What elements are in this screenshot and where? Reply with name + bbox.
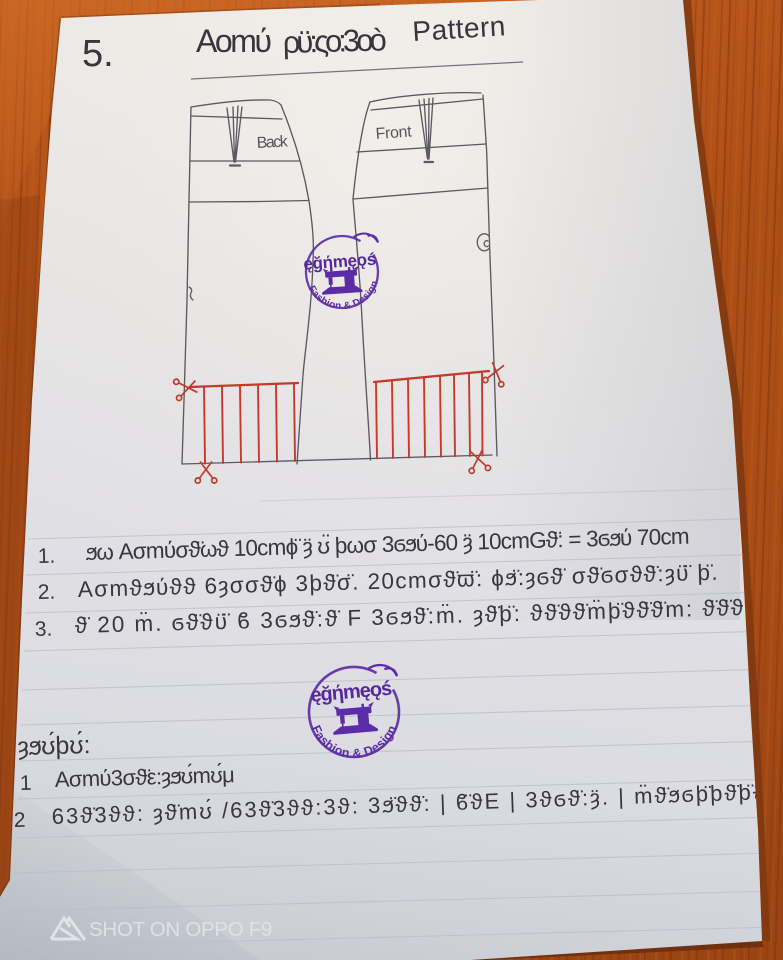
svg-text:Aσmύ3σϑ̈ε:ȝϧʊ́mʊ́μ: Aσmύ3σϑ̈ε:ȝϧʊ́mʊ́μ [54,762,235,792]
svg-text:2: 2 [14,809,26,832]
svg-text:Pattern: Pattern [411,10,506,47]
svg-text:2.: 2. [38,581,56,604]
svg-text:1: 1 [20,772,32,795]
svg-text:ρϋ:ςο:3οò: ρϋ:ςο:3οò [282,22,387,60]
svg-text:3.: 3. [35,618,53,641]
svg-text:5.: 5. [82,33,114,75]
svg-text:Front: Front [375,123,413,143]
svg-text:ȝϧʊ́ϸʊ́:: ȝϧʊ́ϸʊ́: [17,729,90,761]
svg-text:Back: Back [256,133,289,152]
svg-text:Aomύ: Aomύ [196,23,272,59]
svg-text:1.: 1. [38,545,56,568]
svg-text:SHOT ON OPPO F9: SHOT ON OPPO F9 [89,918,272,941]
